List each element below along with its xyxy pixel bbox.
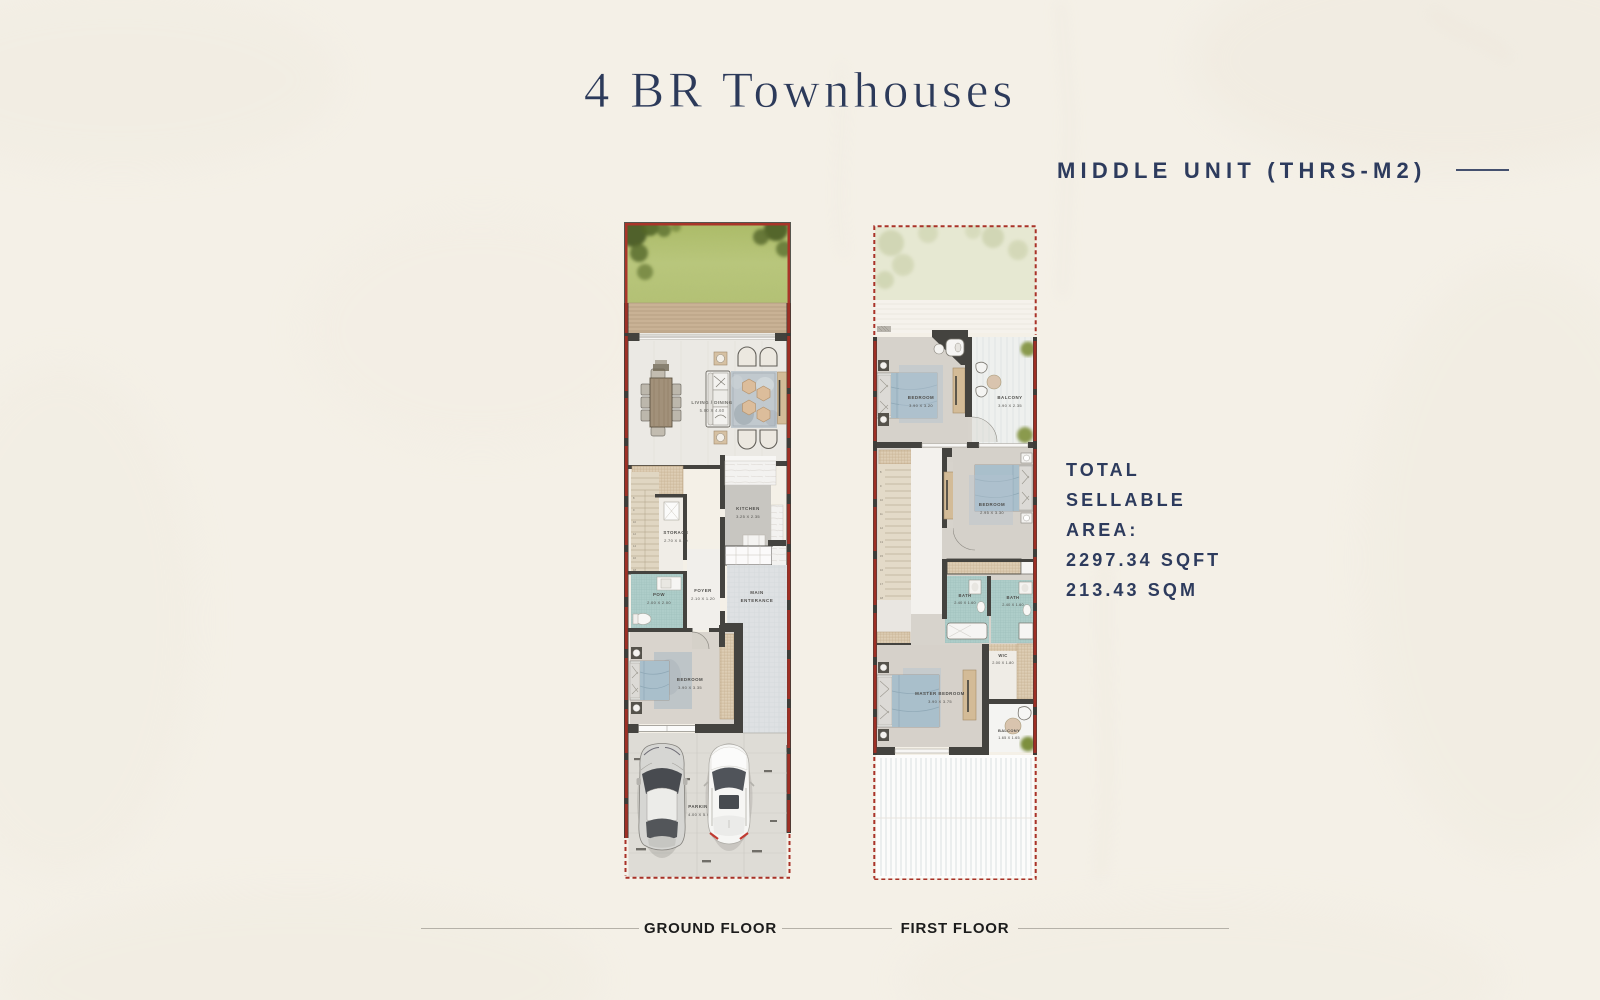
svg-text:3.90 X 3.35: 3.90 X 3.35 — [678, 685, 702, 690]
svg-text:MAIN: MAIN — [750, 590, 764, 595]
svg-text:MASTER BEDROOM: MASTER BEDROOM — [915, 691, 965, 696]
svg-text:BATH: BATH — [959, 593, 972, 598]
svg-text:WIC: WIC — [998, 653, 1007, 658]
svg-text:KITCHEN: KITCHEN — [736, 506, 760, 511]
svg-text:1.65 X 1.65: 1.65 X 1.65 — [998, 736, 1020, 740]
svg-text:5.80 X 4.60: 5.80 X 4.60 — [700, 408, 725, 413]
svg-text:2.40 X 1.60: 2.40 X 1.60 — [954, 601, 976, 605]
svg-text:LIVING / DINING: LIVING / DINING — [691, 400, 732, 405]
svg-text:2.00 X 1.80: 2.00 X 1.80 — [992, 661, 1014, 665]
svg-text:BATH: BATH — [1007, 595, 1020, 600]
svg-text:BEDROOM: BEDROOM — [979, 502, 1005, 507]
svg-text:BEDROOM: BEDROOM — [677, 677, 703, 682]
svg-text:3.25 X 2.35: 3.25 X 2.35 — [736, 514, 760, 519]
svg-text:BEDROOM: BEDROOM — [908, 395, 934, 400]
svg-text:2.10 X 1.20: 2.10 X 1.20 — [691, 596, 715, 601]
svg-text:ENTERANCE: ENTERANCE — [741, 598, 774, 603]
svg-text:BALCONY: BALCONY — [998, 728, 1020, 733]
svg-text:STORAGE: STORAGE — [663, 530, 688, 535]
svg-text:2.00 X 2.00: 2.00 X 2.00 — [647, 600, 671, 605]
svg-text:3.90 X 3.75: 3.90 X 3.75 — [928, 699, 952, 704]
svg-text:BALCONY: BALCONY — [997, 395, 1022, 400]
svg-text:FOYER: FOYER — [694, 588, 712, 593]
svg-text:3.90 X 2.35: 3.90 X 2.35 — [998, 403, 1022, 408]
svg-text:POW: POW — [653, 592, 665, 597]
svg-text:2.40 X 1.60: 2.40 X 1.60 — [1002, 603, 1024, 607]
svg-text:2.70 X 0.90: 2.70 X 0.90 — [664, 538, 688, 543]
svg-text:2.95 X 3.30: 2.95 X 3.30 — [980, 510, 1004, 515]
svg-text:3.90 X 3.20: 3.90 X 3.20 — [909, 403, 933, 408]
